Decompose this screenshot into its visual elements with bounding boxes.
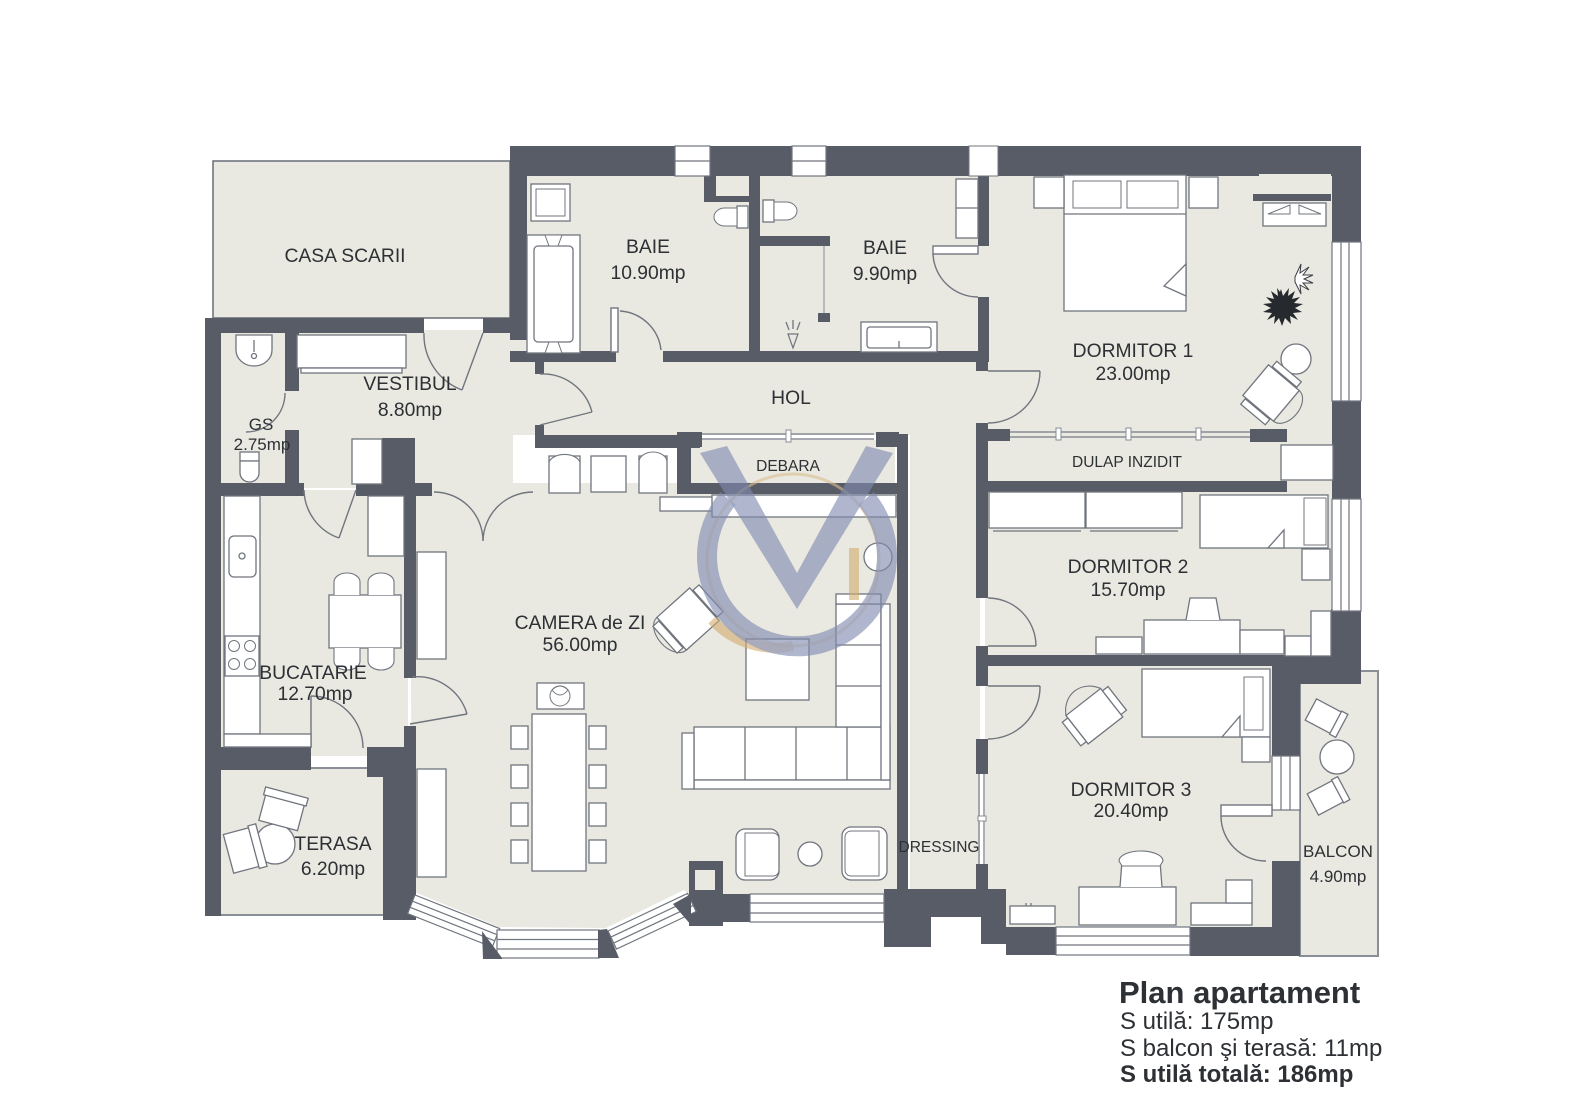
svg-text:BUCATARIE: BUCATARIE bbox=[259, 663, 367, 684]
svg-text:8.80mp: 8.80mp bbox=[378, 400, 442, 421]
svg-text:BAIE: BAIE bbox=[863, 238, 907, 259]
svg-text:Plan apartament: Plan apartament bbox=[1119, 975, 1360, 1010]
svg-text:CASA SCARII: CASA SCARII bbox=[284, 246, 405, 267]
svg-text:9.90mp: 9.90mp bbox=[853, 264, 917, 285]
svg-text:DORMITOR 3: DORMITOR 3 bbox=[1071, 780, 1192, 801]
svg-text:S utilă totală: 186mp: S utilă totală: 186mp bbox=[1120, 1061, 1353, 1088]
svg-text:15.70mp: 15.70mp bbox=[1090, 580, 1165, 601]
svg-text:12.70mp: 12.70mp bbox=[277, 684, 352, 705]
svg-text:6.20mp: 6.20mp bbox=[301, 859, 365, 880]
svg-text:23.00mp: 23.00mp bbox=[1095, 364, 1170, 385]
svg-text:DORMITOR 1: DORMITOR 1 bbox=[1073, 341, 1194, 362]
svg-text:4.90mp: 4.90mp bbox=[1310, 867, 1367, 886]
svg-text:TERASA: TERASA bbox=[294, 834, 371, 855]
svg-text:S balcon şi terasă: 11mp: S balcon şi terasă: 11mp bbox=[1120, 1035, 1382, 1062]
svg-text:DULAP INZIDIT: DULAP INZIDIT bbox=[1072, 454, 1182, 471]
svg-text:2.75mp: 2.75mp bbox=[234, 435, 291, 454]
svg-text:BAIE: BAIE bbox=[626, 237, 670, 258]
svg-text:GS: GS bbox=[249, 415, 274, 434]
svg-text:DEBARA: DEBARA bbox=[756, 458, 820, 475]
svg-text:10.90mp: 10.90mp bbox=[610, 263, 685, 284]
svg-text:20.40mp: 20.40mp bbox=[1093, 801, 1168, 822]
svg-text:CAMERA de ZI: CAMERA de ZI bbox=[515, 613, 646, 634]
svg-text:DORMITOR 2: DORMITOR 2 bbox=[1068, 557, 1189, 578]
svg-text:56.00mp: 56.00mp bbox=[542, 635, 617, 656]
svg-text:HOL: HOL bbox=[771, 388, 811, 409]
svg-text:VESTIBUL: VESTIBUL bbox=[363, 374, 457, 395]
svg-text:BALCON: BALCON bbox=[1303, 842, 1373, 861]
svg-text:DRESSING: DRESSING bbox=[899, 839, 980, 856]
svg-text:S utilă: 175mp: S utilă: 175mp bbox=[1120, 1008, 1273, 1035]
